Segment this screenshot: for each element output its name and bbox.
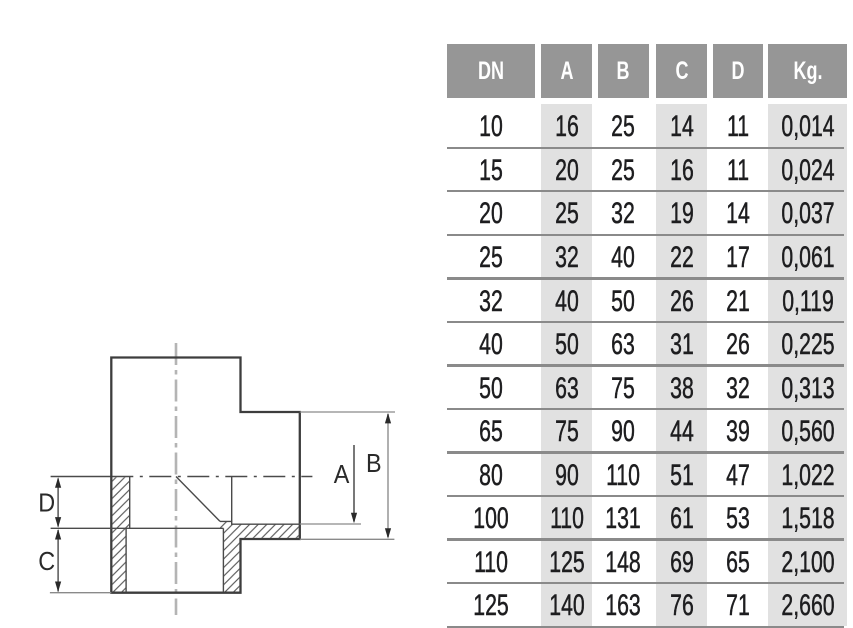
svg-text:D: D	[38, 490, 55, 518]
svg-text:B: B	[366, 450, 382, 478]
svg-text:C: C	[38, 548, 55, 576]
svg-text:A: A	[334, 461, 350, 489]
